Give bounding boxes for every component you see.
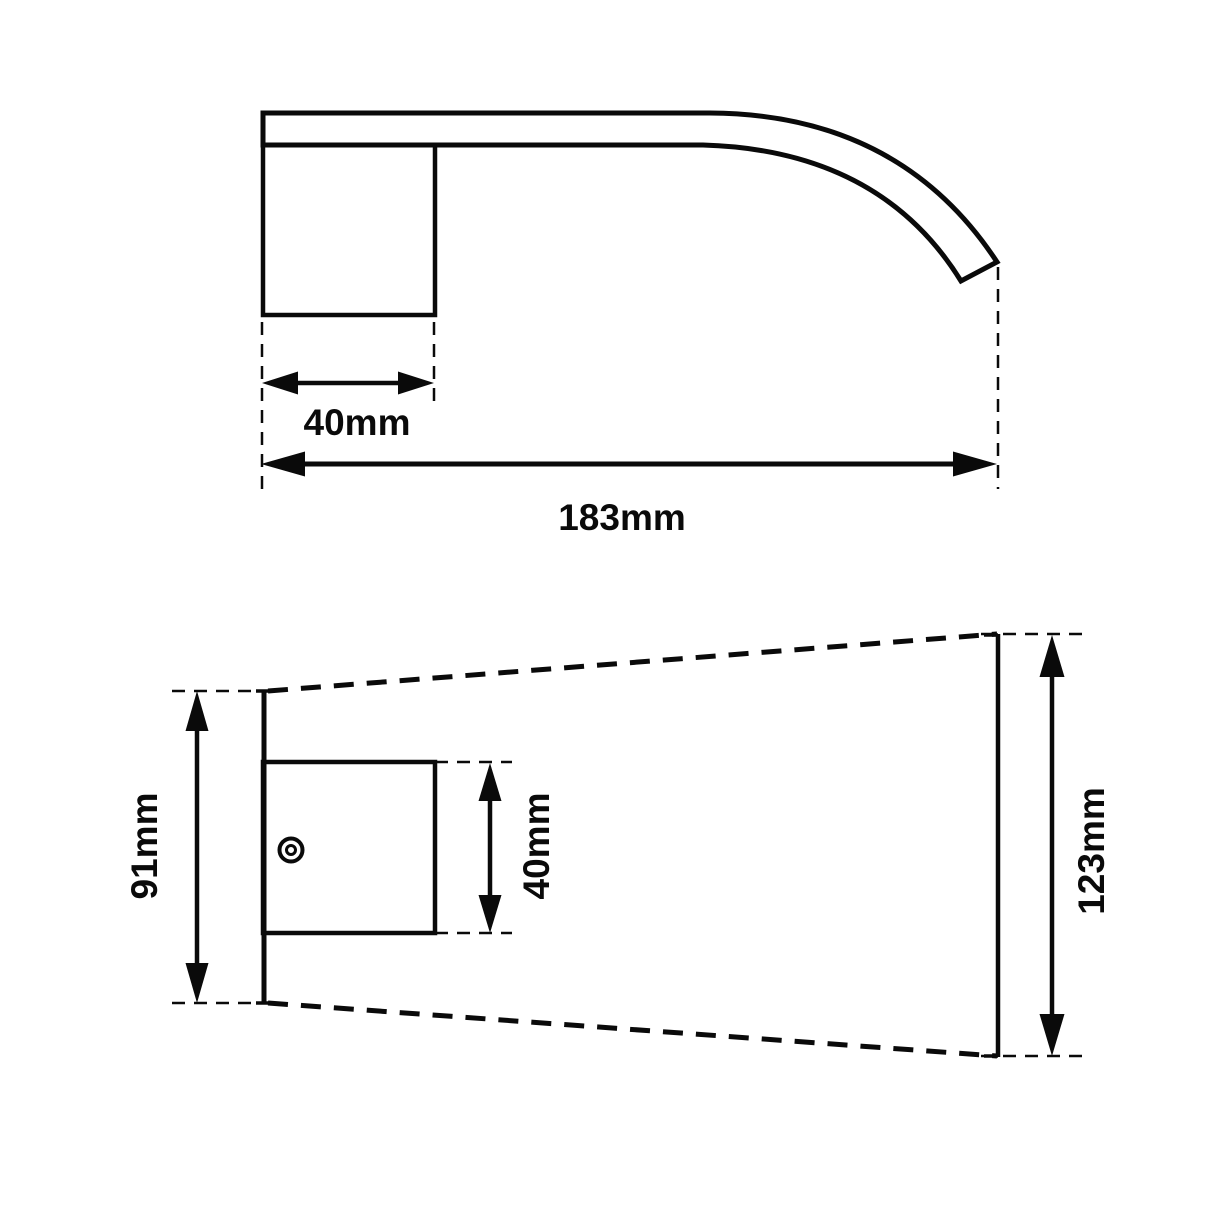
- screw-hole-inner-icon: [287, 846, 296, 855]
- dimension-plate-height: 91mm: [124, 691, 209, 1003]
- arrowhead-down-icon: [1040, 1014, 1065, 1056]
- arrowhead-right-icon: [398, 372, 434, 395]
- screw-hole-outer-icon: [280, 839, 303, 862]
- projection-line-top: [268, 634, 997, 691]
- dimension-block-height: 40mm: [479, 763, 558, 933]
- arrowhead-up-icon: [186, 691, 209, 731]
- drawing-canvas: 40mm 183mm: [0, 0, 1214, 1214]
- dimension-label-base-width: 40mm: [304, 402, 411, 443]
- dimension-label-outlet-height: 123mm: [1071, 787, 1112, 915]
- plan-view: 91mm 40mm 123mm: [124, 634, 1112, 1057]
- side-profile-view: 40mm 183mm: [261, 113, 998, 538]
- dimension-label-plate-height: 91mm: [124, 793, 165, 900]
- arrowhead-left-icon: [262, 372, 298, 395]
- arrowhead-left-icon: [261, 452, 305, 477]
- dimension-label-total-length: 183mm: [558, 497, 686, 538]
- dimension-label-block-height: 40mm: [516, 793, 557, 900]
- arrowhead-up-icon: [479, 763, 502, 801]
- technical-drawing-spout: 40mm 183mm: [0, 0, 1214, 1214]
- arrowhead-right-icon: [953, 452, 997, 477]
- dimension-base-width: 40mm: [262, 372, 434, 444]
- spout-profile-outline: [263, 113, 997, 281]
- arrowhead-down-icon: [186, 963, 209, 1003]
- dimension-total-length: 183mm: [261, 452, 997, 539]
- dimension-outlet-height: 123mm: [1040, 635, 1113, 1056]
- projection-line-bottom: [268, 1003, 997, 1056]
- arrowhead-up-icon: [1040, 635, 1065, 677]
- mounting-block-side: [263, 145, 435, 315]
- arrowhead-down-icon: [479, 895, 502, 933]
